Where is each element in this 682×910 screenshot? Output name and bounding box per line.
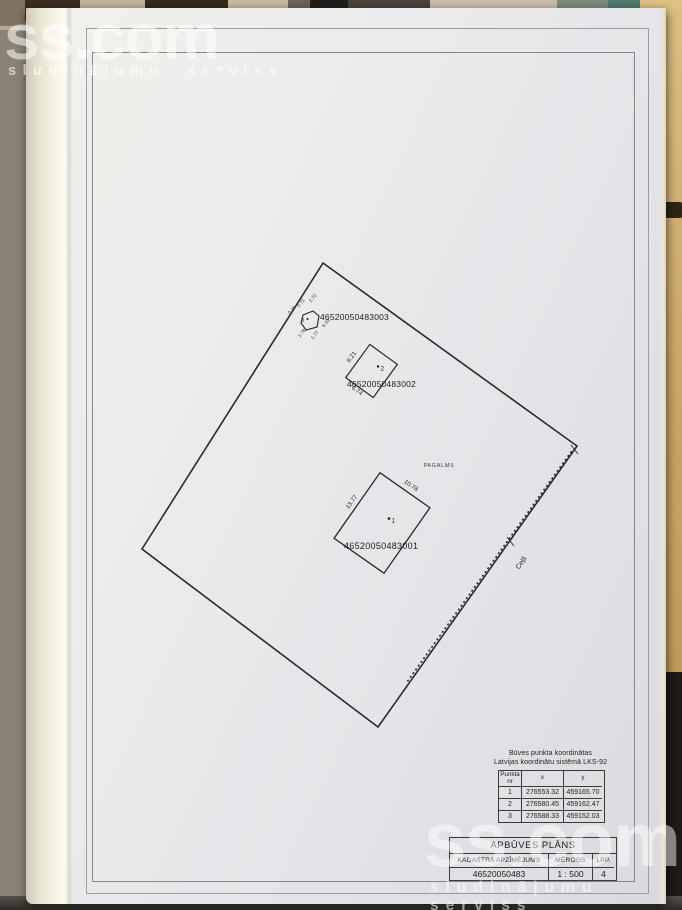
point-y: 459165.70 <box>564 787 602 799</box>
col-header-nr: Punkta nr <box>499 771 522 787</box>
building-3-cadastre: 46520050483003 <box>320 312 389 322</box>
plan-document-page: 1 46520050483001 13.77 10.78 2 465200504… <box>26 8 666 904</box>
building-1-cadastre: 46520050483001 <box>344 541 418 551</box>
coordinates-table: Punkta nr x y 1 276553.32 459165.70 2 27… <box>498 770 605 823</box>
cadastre-label: KADASTRA APZĪMĒJUMS <box>450 854 549 868</box>
building-1-marker: 1 <box>392 518 396 525</box>
building-3-point <box>307 318 309 320</box>
title-block: APBŪVES PLĀNS KADASTRA APZĪMĒJUMS MĒROGS… <box>449 837 617 881</box>
plan-title: APBŪVES PLĀNS <box>450 838 616 854</box>
point-x: 276580.45 <box>522 799 564 811</box>
building-1-dim-left: 13.77 <box>344 493 359 510</box>
building-3-dim: 2.72 <box>296 298 307 309</box>
coordinates-block: Būves punkta koordinātas Latvijas koordi… <box>470 750 631 767</box>
scale-value: 1 : 500 <box>549 868 593 880</box>
building-2-point <box>377 365 379 367</box>
title-block-grid: KADASTRA APZĪMĒJUMS MĒROGS LPP. 46520050… <box>450 854 616 880</box>
building-2-marker: 2 <box>381 366 385 373</box>
building-3-dim: 2.72 <box>308 293 319 304</box>
point-nr: 2 <box>499 799 522 811</box>
building-3-dim: 1.77 <box>310 330 321 341</box>
cadastre-value: 46520050483 <box>450 868 549 880</box>
point-y: 459162.47 <box>564 799 602 811</box>
road-dotted-line <box>407 452 571 682</box>
page-value: 4 <box>593 868 614 880</box>
building-3-marker: 3 <box>301 318 304 324</box>
photo-of-building-plan: 1 46520050483001 13.77 10.78 2 465200504… <box>0 0 682 910</box>
point-y: 459152.03 <box>564 811 602 822</box>
building-1-dim-right: 10.78 <box>403 478 420 493</box>
point-nr: 1 <box>499 787 522 799</box>
building-1-point <box>388 517 391 520</box>
road-label: Ceļš <box>515 555 529 571</box>
page-label: LPP. <box>593 854 614 868</box>
point-x: 276553.32 <box>522 787 564 799</box>
point-x: 276588.33 <box>522 811 564 822</box>
point-nr: 3 <box>499 811 522 822</box>
yard-label: PAGALMS <box>423 463 454 469</box>
col-header-y: y <box>564 771 602 787</box>
parcel-boundary <box>142 263 577 727</box>
scale-label: MĒROGS <box>549 854 593 868</box>
coordinates-title-line1: Būves punkta koordinātas <box>470 750 631 759</box>
coordinates-title-line2: Latvijas koordinātu sistēmā LKS-92 <box>470 759 631 768</box>
col-header-x: x <box>522 771 564 787</box>
